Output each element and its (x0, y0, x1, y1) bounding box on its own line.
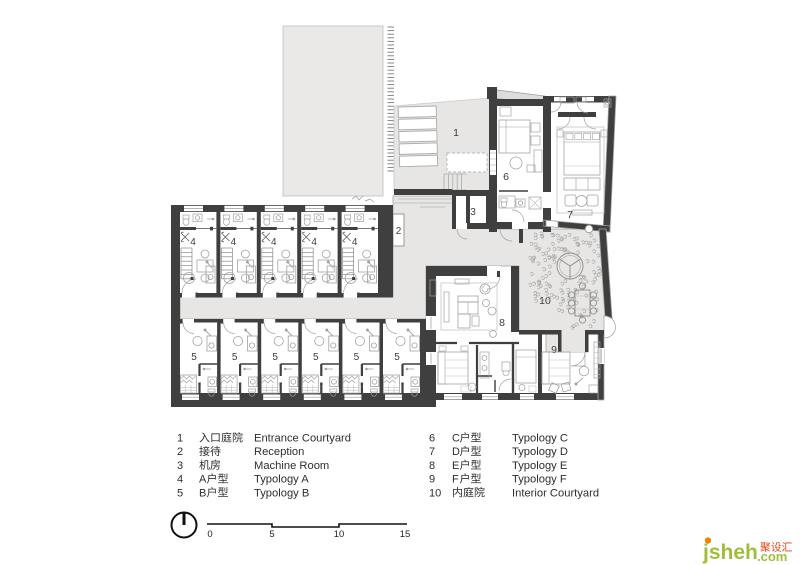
svg-text:Interior Courtyard: Interior Courtyard (512, 487, 599, 499)
svg-text:4: 4 (352, 237, 358, 248)
svg-text:4: 4 (231, 237, 237, 248)
svg-text:jsheh: jsheh (702, 541, 758, 564)
svg-text:10: 10 (334, 529, 345, 540)
svg-text:7: 7 (567, 209, 573, 221)
svg-text:5: 5 (191, 352, 197, 363)
svg-text:5: 5 (313, 352, 319, 363)
svg-text:5: 5 (269, 529, 274, 540)
svg-text:5: 5 (394, 352, 400, 363)
svg-text:Typology C: Typology C (512, 433, 568, 445)
svg-text:15: 15 (400, 529, 411, 540)
svg-text:Entrance Courtyard: Entrance Courtyard (254, 433, 351, 445)
svg-text:1: 1 (177, 433, 183, 445)
svg-text:5: 5 (232, 352, 238, 363)
svg-text:8: 8 (499, 317, 505, 329)
svg-text:4: 4 (271, 237, 277, 248)
svg-text:4: 4 (190, 237, 196, 248)
svg-text:Typology B: Typology B (254, 487, 309, 499)
svg-text:9: 9 (551, 344, 557, 356)
svg-text:2: 2 (396, 226, 402, 237)
svg-text:Reception: Reception (254, 446, 304, 458)
svg-text:Typology A: Typology A (254, 474, 309, 486)
svg-text:D: D (452, 446, 460, 458)
svg-text:F: F (452, 474, 459, 486)
svg-text:10: 10 (429, 487, 441, 499)
svg-text:Typology F: Typology F (512, 474, 567, 486)
svg-text:8: 8 (429, 460, 435, 472)
svg-text:9: 9 (429, 474, 435, 486)
svg-text:Machine Room: Machine Room (254, 460, 329, 472)
svg-text:6: 6 (429, 433, 435, 445)
svg-text:5: 5 (272, 352, 278, 363)
svg-text:3: 3 (177, 460, 183, 472)
svg-text:5: 5 (177, 487, 183, 499)
svg-text:Typology E: Typology E (512, 460, 567, 472)
svg-text:E: E (452, 460, 459, 472)
svg-text:0: 0 (207, 529, 212, 540)
svg-text:A: A (199, 474, 207, 486)
svg-text:6: 6 (503, 171, 509, 183)
svg-text:B: B (199, 487, 206, 499)
svg-text:1: 1 (453, 127, 459, 139)
svg-text:Typology D: Typology D (512, 446, 568, 458)
svg-text:5: 5 (354, 352, 360, 363)
svg-text:2: 2 (177, 446, 183, 458)
svg-text:3: 3 (470, 207, 476, 218)
svg-text:4: 4 (311, 237, 317, 248)
svg-text:7: 7 (429, 446, 435, 458)
svg-text:C: C (452, 433, 460, 445)
svg-text:4: 4 (177, 474, 183, 486)
